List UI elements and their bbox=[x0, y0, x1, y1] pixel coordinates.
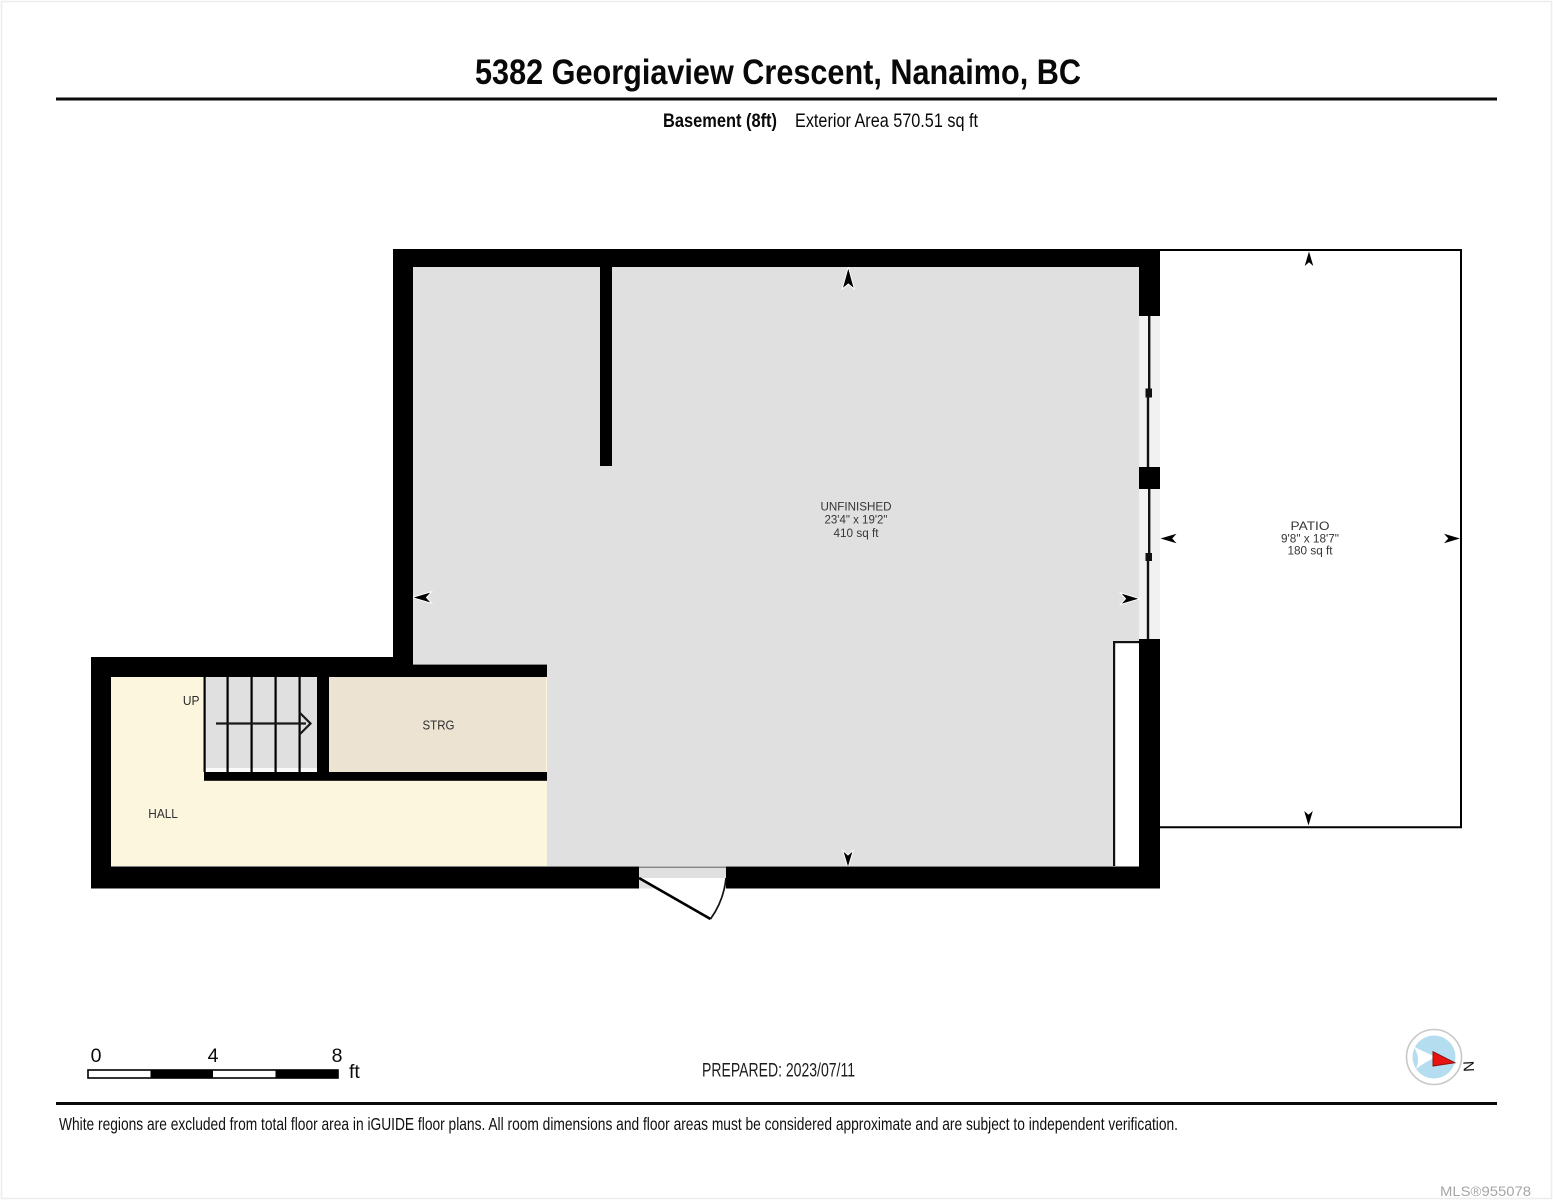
svg-text:ft: ft bbox=[349, 1061, 360, 1083]
svg-text:410 sq ft: 410 sq ft bbox=[834, 526, 880, 540]
svg-text:23'4" x 19'2": 23'4" x 19'2" bbox=[825, 513, 888, 527]
svg-text:180 sq ft: 180 sq ft bbox=[1288, 544, 1334, 558]
svg-text:MLS®955078: MLS®955078 bbox=[1440, 1183, 1531, 1199]
svg-text:N: N bbox=[1459, 1061, 1477, 1073]
svg-text:5382 Georgiaview Crescent, Nan: 5382 Georgiaview Crescent, Nanaimo, BC bbox=[475, 53, 1081, 92]
svg-text:8: 8 bbox=[332, 1045, 343, 1067]
svg-text:0: 0 bbox=[91, 1045, 102, 1067]
svg-text:White regions are excluded fro: White regions are excluded from total fl… bbox=[59, 1114, 1178, 1134]
svg-text:UNFINISHED: UNFINISHED bbox=[821, 500, 892, 514]
svg-text:Exterior Area 570.51 sq ft: Exterior Area 570.51 sq ft bbox=[795, 110, 978, 132]
svg-text:Basement (8ft): Basement (8ft) bbox=[663, 110, 777, 132]
svg-text:UP: UP bbox=[183, 693, 200, 708]
svg-text:HALL: HALL bbox=[148, 806, 178, 821]
svg-text:PREPARED: 2023/07/11: PREPARED: 2023/07/11 bbox=[702, 1061, 855, 1082]
svg-text:4: 4 bbox=[208, 1045, 219, 1067]
svg-text:STRG: STRG bbox=[423, 718, 455, 733]
